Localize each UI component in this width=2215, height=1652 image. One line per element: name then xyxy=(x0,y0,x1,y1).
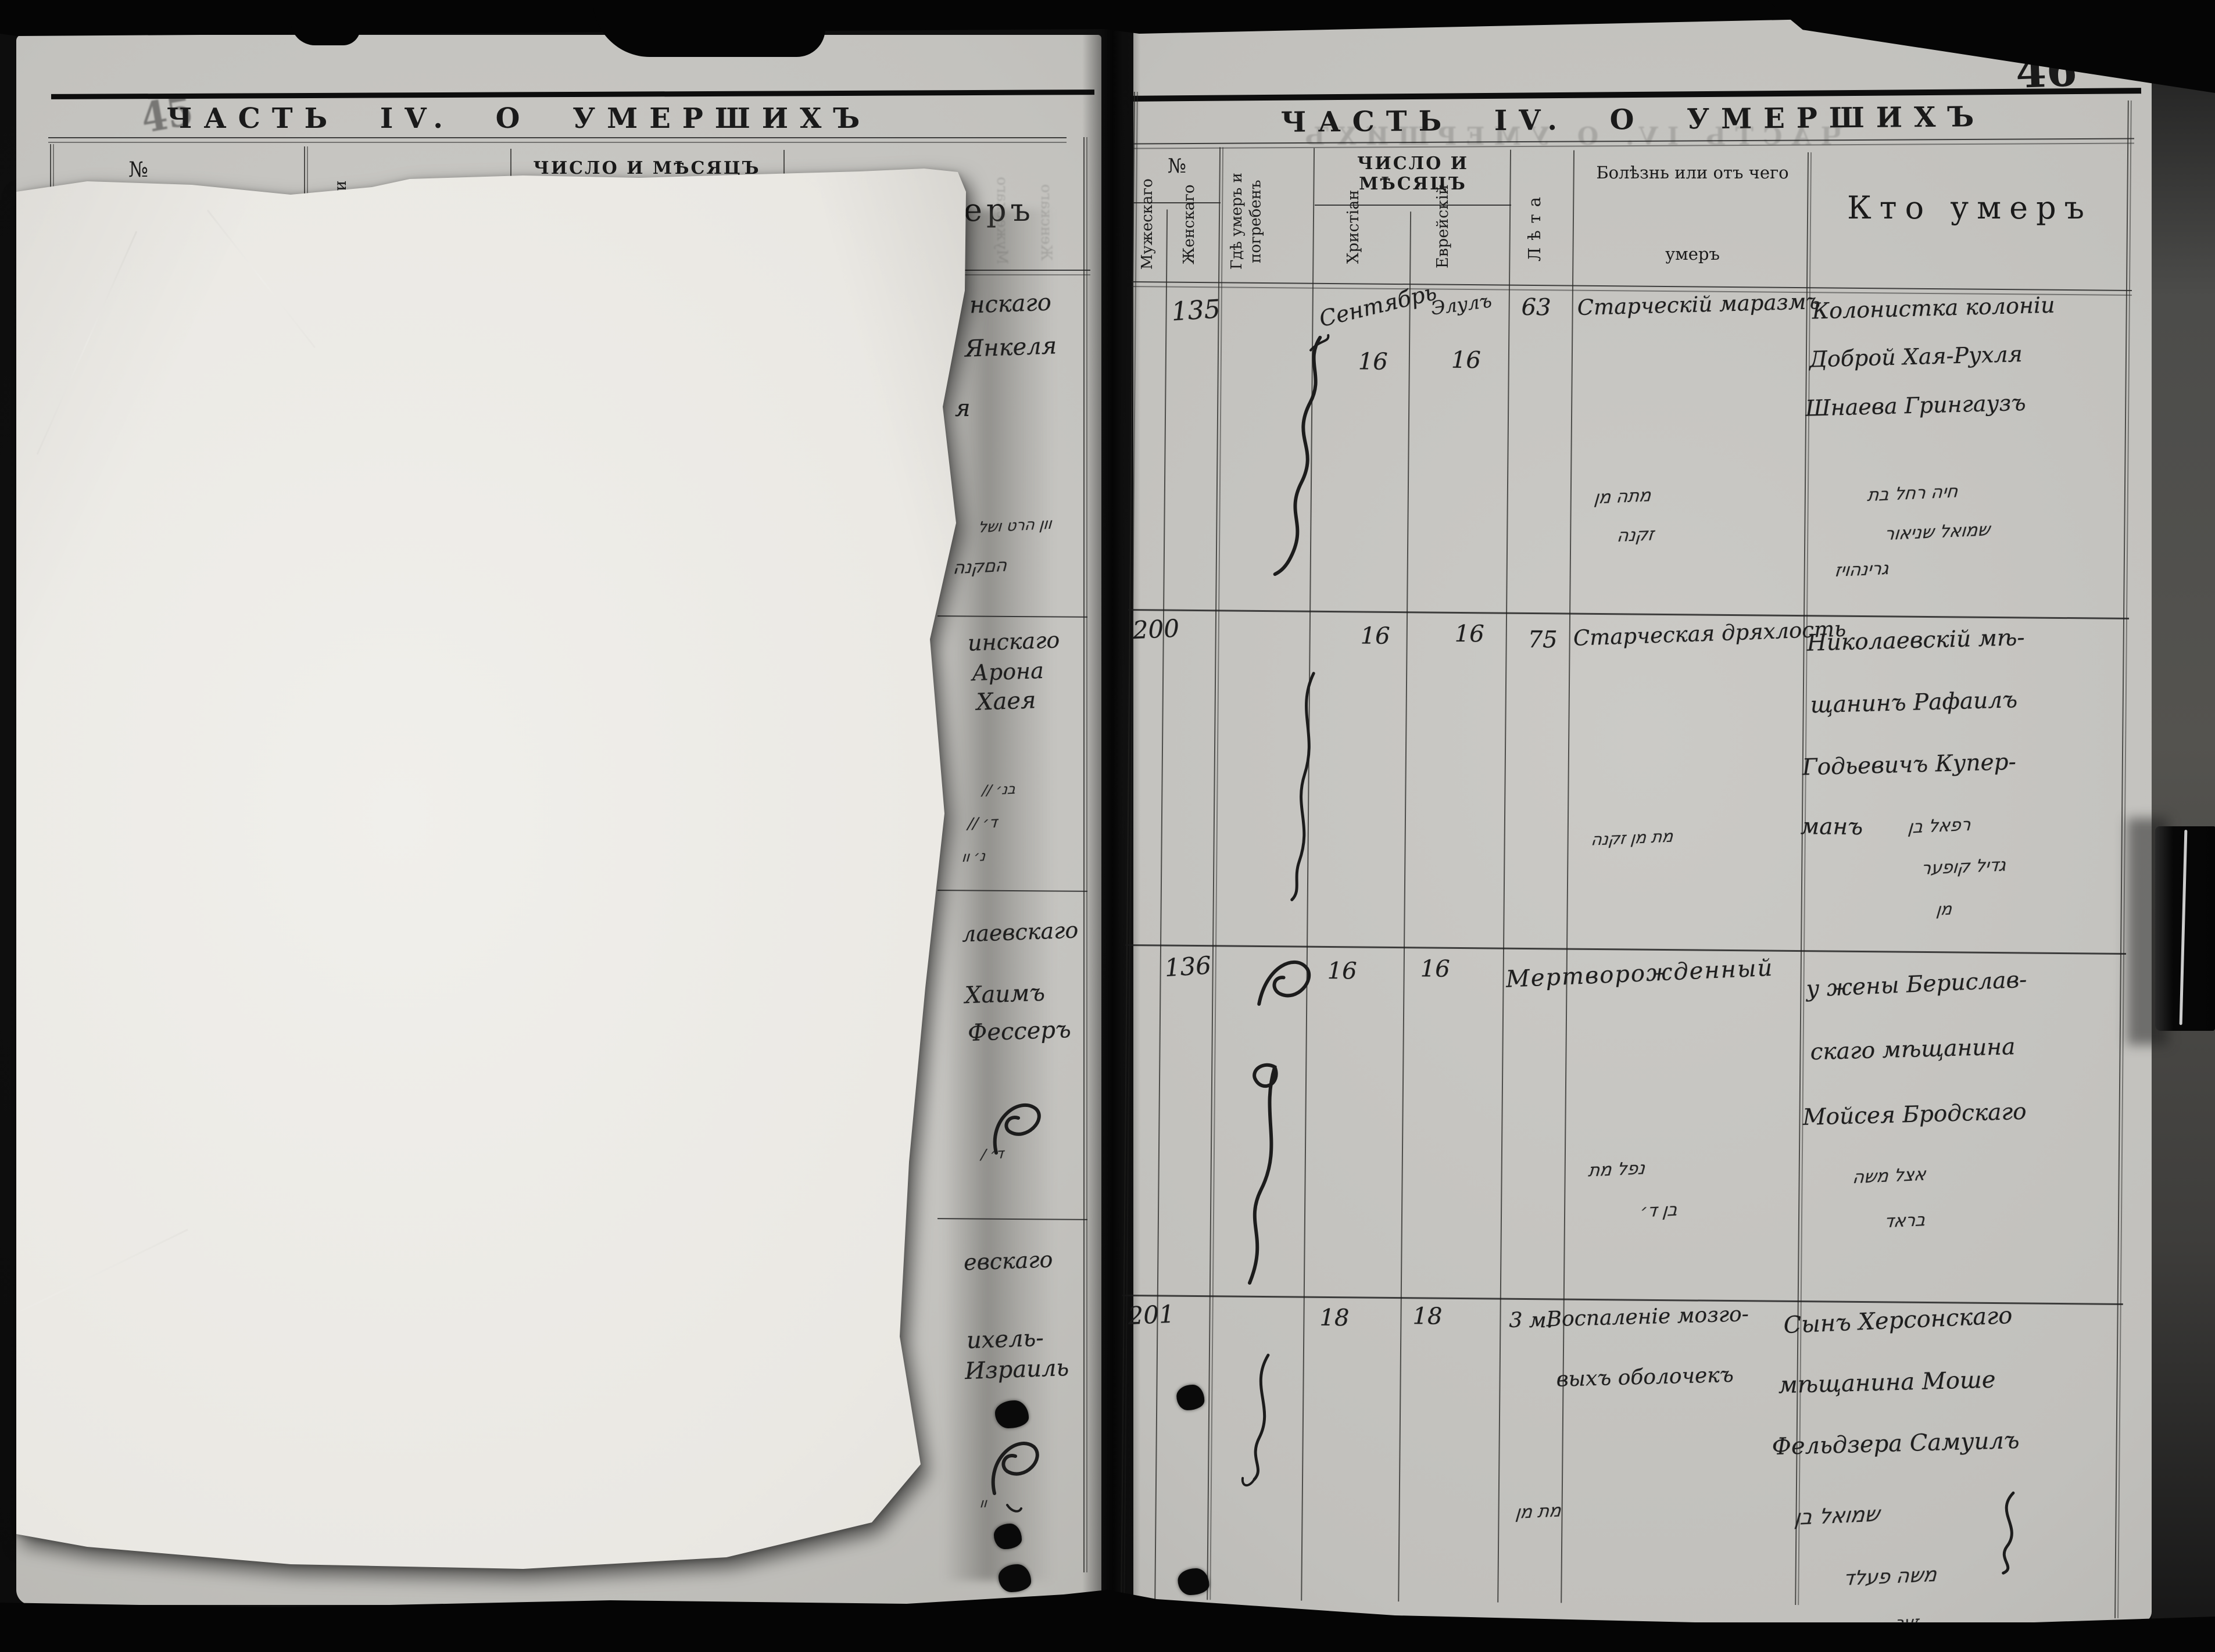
entry-fragment: Фессеръ xyxy=(967,1016,1071,1047)
cause-of-death-line: Воспаленіе мозго- xyxy=(1546,1302,1749,1331)
hebrew-who-note: שמואל בן xyxy=(1794,1502,1881,1530)
rule xyxy=(48,142,1067,143)
age-value: 75 xyxy=(1527,626,1557,653)
hebrew-who-note: גרינהויז xyxy=(1834,558,1890,581)
cause-of-death: Мертворожденный xyxy=(1505,955,1774,993)
hebrew-cause-note: מת מן xyxy=(1515,1500,1562,1523)
table-body: 135 Сентябрь 16 Элулъ 16 63 Старческій м… xyxy=(1119,17,2152,1631)
who-died-line: Шнаева Грингаузъ xyxy=(1805,390,2026,421)
entry-fragment: нскаго xyxy=(969,289,1051,319)
hebrew-cause-note: זקנה xyxy=(1616,524,1655,546)
hebrew-who-note: בראד xyxy=(1883,1210,1926,1232)
christian-day: 18 xyxy=(1319,1305,1349,1331)
white-sheet xyxy=(16,169,969,1607)
cause-of-death: Старческая дряхлость xyxy=(1573,617,1847,651)
entry-fragment: Янкеля xyxy=(964,332,1057,362)
entry-number-female: 135 xyxy=(1171,294,1221,327)
ink-blot xyxy=(994,1524,1022,1549)
rule xyxy=(48,137,1067,138)
who-died-line: Сынъ Херсонскаго xyxy=(1783,1302,2013,1339)
hebrew-cause-note: מתה מן xyxy=(1593,485,1652,508)
burial-place-flourish xyxy=(1250,948,1320,1024)
row-separator xyxy=(1128,609,2129,619)
burial-place-flourish xyxy=(1231,1349,1290,1495)
entry-number-female: 136 xyxy=(1164,951,1212,982)
paper-crease xyxy=(0,1229,188,1363)
entry-fragment: евскаго xyxy=(963,1246,1053,1275)
hebrew-cause-note: בן ד׳ xyxy=(1639,1199,1678,1221)
left-page-title: ЧАСТЬ IV. О УМЕРШИХЪ xyxy=(63,102,975,135)
entry-fragment: Арона xyxy=(971,658,1044,686)
jewish-day: 16 xyxy=(1451,347,1481,374)
jewish-day: 18 xyxy=(1412,1303,1442,1330)
hebrew-note: בנ׳ // xyxy=(982,780,1017,798)
who-died-line: Годьевичъ Купер- xyxy=(1802,749,2016,781)
ink-blot xyxy=(1176,1385,1204,1410)
hebrew-note: ד׳ / xyxy=(981,1145,1004,1163)
hebrew-cause-note: נפל מת xyxy=(1587,1158,1646,1181)
hebrew-who-note: רפאל בן xyxy=(1907,815,1971,838)
burial-place-flourish xyxy=(1278,669,1326,902)
jewish-month: Элулъ xyxy=(1430,289,1493,319)
pen-flourish xyxy=(978,1429,1054,1517)
christian-month: Сентябрь xyxy=(1316,279,1439,332)
christian-day: 16 xyxy=(1327,958,1357,984)
column-rule-no-where xyxy=(1207,147,1221,1600)
paper-crease xyxy=(37,231,138,455)
who-died-line: мѣщанина Моше xyxy=(1778,1367,1996,1399)
hebrew-who-note: שמואל שניאור xyxy=(1884,519,1991,544)
who-died-line: Колонистка колоніи xyxy=(1812,292,2055,324)
entry-fragment: ихель- xyxy=(966,1325,1044,1354)
who-died-line: Фельдзера Самуилъ xyxy=(1772,1427,2020,1460)
who-died-line: Мойсея Бродскаго xyxy=(1802,1099,2027,1131)
column-rule-christian-jewish xyxy=(1398,212,1411,1601)
hebrew-who-note: חיה רחל בת xyxy=(1866,481,1959,506)
right-page: 46 ЧАСТЬ IV. О УМЕРШИХЪ ЧАСТЬ IV. О УМЕР… xyxy=(1133,17,2152,1622)
entry-fragment: инскаго xyxy=(967,627,1060,655)
loose-paper-overlay xyxy=(16,169,969,1607)
entry-fragment: Хаея xyxy=(976,687,1036,716)
hebrew-cause-note: מת מן זקנה xyxy=(1590,826,1674,849)
top-notch xyxy=(593,0,825,57)
ink-blot xyxy=(995,1400,1029,1428)
ink-blot xyxy=(1178,1568,1209,1595)
column-rule-jewish-age xyxy=(1497,150,1511,1603)
header-bottom-rule xyxy=(1131,281,2132,291)
entry-fragment: лаевскаго xyxy=(961,918,1079,947)
christian-day: 16 xyxy=(1358,348,1388,375)
who-died-line: скаго мѣщанина xyxy=(1810,1034,2016,1065)
burial-place-flourish xyxy=(1262,332,1334,577)
who-died-line: щанинъ Рафаилъ xyxy=(1810,687,2017,718)
age-value: 63 xyxy=(1521,294,1551,321)
scanned-register-spread: 45 ЧАСТЬ IV. О УМЕРШИХЪ № и ЧИСЛО И МѢСЯ… xyxy=(0,0,2215,1652)
paper-crease xyxy=(207,210,316,348)
entry-fragment: Израиль xyxy=(964,1354,1069,1385)
clip-highlight xyxy=(2180,830,2188,1025)
who-died-line: Доброй Хая-Рухля xyxy=(1809,341,2023,372)
book-gutter xyxy=(1082,16,1140,1625)
entry-fragment: Хаимъ xyxy=(964,980,1045,1009)
cause-of-death-line: выхъ оболочекъ xyxy=(1556,1363,1734,1392)
christian-day: 16 xyxy=(1361,622,1390,649)
hebrew-note: וו xyxy=(979,1496,987,1511)
top-notch xyxy=(291,0,360,45)
ink-blot xyxy=(999,1564,1031,1592)
hebrew-who-note: מן xyxy=(1935,900,1953,919)
who-died-line: Николаевскій мѣ- xyxy=(1806,625,2025,657)
pen-flourish xyxy=(1986,1489,2027,1577)
hebrew-note: ד׳ // xyxy=(967,814,998,833)
column-rule-male-female xyxy=(1154,210,1168,1600)
jewish-day: 16 xyxy=(1455,621,1484,647)
hebrew-who-note: אצל משה xyxy=(1852,1164,1927,1188)
who-died-line: манъ xyxy=(1801,814,1863,840)
hebrew-who-note: משה פעלד xyxy=(1842,1563,1938,1590)
cause-of-death: Старческій маразмъ xyxy=(1577,289,1820,320)
left-title-top-rule xyxy=(51,89,1094,99)
black-clip xyxy=(2155,826,2215,1031)
burial-place-flourish xyxy=(1224,1058,1290,1291)
who-died-line: у жены Берислав- xyxy=(1806,967,2028,1003)
jewish-day: 16 xyxy=(1420,955,1450,982)
hebrew-who-note: גדיל קופער xyxy=(1920,855,2007,879)
